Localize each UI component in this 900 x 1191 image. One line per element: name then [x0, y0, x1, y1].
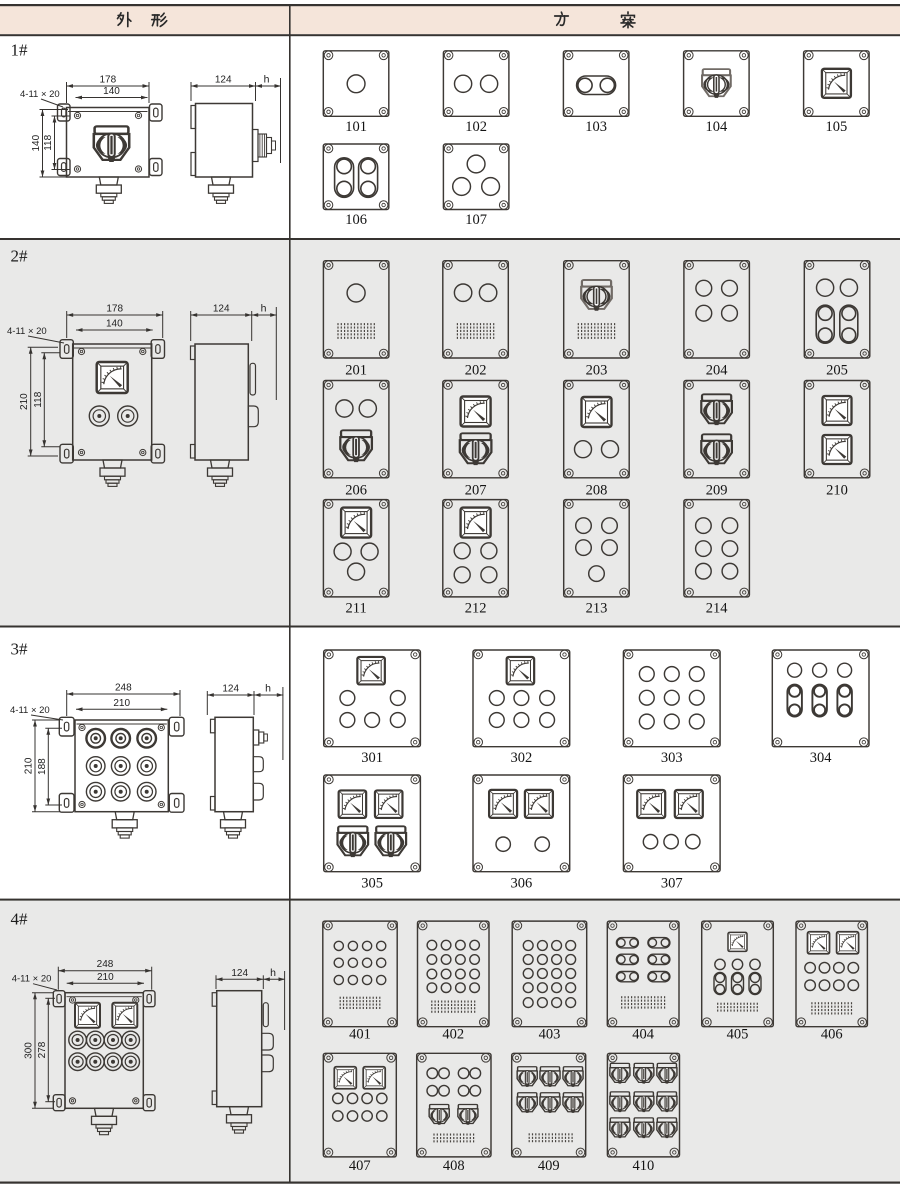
svg-text:202: 202 [465, 363, 487, 379]
svg-text:178: 178 [106, 304, 123, 315]
svg-text:205: 205 [826, 363, 848, 379]
svg-text:408: 408 [443, 1158, 465, 1174]
svg-text:103: 103 [585, 119, 607, 135]
svg-text:118: 118 [43, 134, 54, 150]
svg-text:4-11 × 20: 4-11 × 20 [7, 326, 47, 337]
svg-text:h: h [265, 683, 271, 695]
svg-text:106: 106 [345, 212, 367, 228]
svg-text:306: 306 [511, 876, 533, 892]
svg-text:4-11 × 20: 4-11 × 20 [10, 705, 50, 716]
svg-text:207: 207 [465, 483, 487, 499]
svg-text:h: h [261, 303, 267, 315]
svg-text:4-11 × 20: 4-11 × 20 [12, 974, 52, 985]
svg-text:211: 211 [345, 601, 366, 617]
svg-text:105: 105 [826, 119, 848, 135]
svg-text:188: 188 [37, 758, 48, 775]
svg-text:405: 405 [727, 1027, 749, 1043]
svg-text:208: 208 [586, 483, 608, 499]
svg-text:206: 206 [345, 483, 367, 499]
svg-text:248: 248 [97, 959, 114, 970]
svg-text:101: 101 [345, 119, 367, 135]
svg-text:124: 124 [213, 304, 230, 315]
svg-text:406: 406 [821, 1027, 843, 1043]
svg-text:h: h [270, 967, 276, 979]
svg-text:210: 210 [24, 757, 35, 774]
svg-text:h: h [264, 74, 270, 86]
svg-text:209: 209 [706, 483, 728, 499]
svg-text:305: 305 [361, 876, 383, 892]
svg-text:248: 248 [115, 683, 132, 694]
svg-text:118: 118 [33, 391, 44, 407]
svg-text:4#: 4# [11, 910, 29, 929]
svg-text:124: 124 [231, 968, 248, 979]
svg-text:140: 140 [31, 134, 42, 151]
svg-text:4-11 × 20: 4-11 × 20 [20, 89, 60, 100]
svg-text:140: 140 [103, 86, 120, 97]
svg-text:140: 140 [106, 319, 123, 330]
svg-text:204: 204 [706, 363, 729, 379]
svg-text:124: 124 [222, 684, 239, 695]
svg-text:404: 404 [632, 1027, 655, 1043]
svg-text:1#: 1# [11, 41, 29, 60]
svg-text:303: 303 [661, 750, 683, 766]
svg-text:278: 278 [37, 1041, 48, 1058]
svg-text:402: 402 [442, 1027, 464, 1043]
svg-text:307: 307 [661, 876, 683, 892]
svg-text:210: 210 [97, 972, 114, 983]
svg-text:102: 102 [465, 119, 487, 135]
svg-text:210: 210 [113, 698, 130, 709]
svg-text:203: 203 [586, 363, 608, 379]
svg-text:178: 178 [99, 75, 116, 86]
svg-text:3#: 3# [11, 640, 29, 659]
svg-text:212: 212 [465, 601, 487, 617]
svg-text:214: 214 [706, 601, 729, 617]
svg-text:403: 403 [539, 1027, 561, 1043]
svg-text:300: 300 [24, 1042, 35, 1059]
svg-text:401: 401 [349, 1027, 371, 1043]
svg-text:107: 107 [465, 212, 487, 228]
svg-text:213: 213 [586, 601, 608, 617]
svg-text:2#: 2# [11, 247, 29, 266]
svg-text:301: 301 [361, 750, 383, 766]
svg-text:104: 104 [706, 119, 729, 135]
svg-text:302: 302 [511, 750, 533, 766]
svg-text:409: 409 [538, 1158, 560, 1174]
svg-text:410: 410 [633, 1158, 655, 1174]
svg-text:210: 210 [19, 393, 30, 410]
svg-text:210: 210 [826, 483, 848, 499]
svg-text:124: 124 [215, 75, 232, 86]
svg-text:407: 407 [349, 1158, 371, 1174]
svg-text:201: 201 [345, 363, 367, 379]
svg-text:304: 304 [810, 750, 833, 766]
